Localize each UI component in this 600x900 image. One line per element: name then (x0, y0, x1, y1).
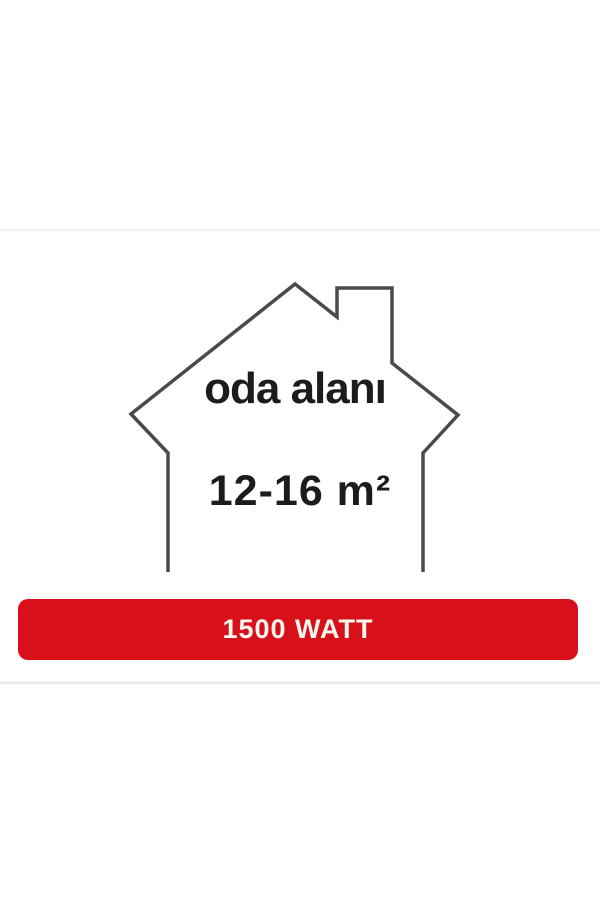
watt-badge: 1500 WATT (18, 599, 578, 660)
bottom-divider (0, 681, 600, 684)
watt-badge-label: 1500 WATT (222, 616, 373, 643)
area-range-value: 12-16 m² (209, 470, 391, 513)
room-area-label: oda alanı (204, 367, 386, 411)
product-page: oda alanı 12-16 m² 1500 WATT (0, 0, 600, 900)
